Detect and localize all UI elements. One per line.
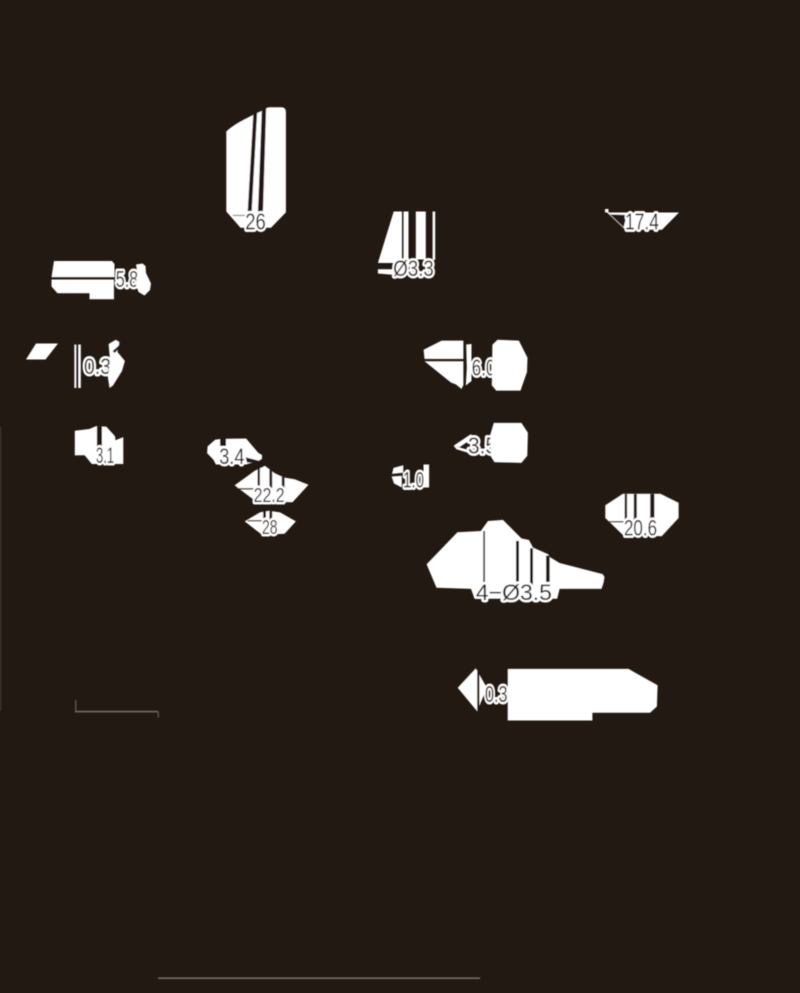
svg-text:28: 28 bbox=[262, 516, 278, 539]
svg-text:3.1: 3.1 bbox=[96, 443, 114, 468]
svg-text:6.0: 6.0 bbox=[472, 354, 496, 380]
svg-text:0.3: 0.3 bbox=[485, 681, 508, 707]
svg-text:22.2: 22.2 bbox=[254, 484, 285, 507]
svg-text:17.4: 17.4 bbox=[625, 209, 659, 235]
svg-text:1.0: 1.0 bbox=[403, 467, 424, 492]
svg-text:26: 26 bbox=[245, 209, 265, 235]
svg-text:3.4: 3.4 bbox=[219, 444, 244, 469]
svg-text:Ø3.3: Ø3.3 bbox=[393, 256, 434, 281]
svg-text:5.8: 5.8 bbox=[116, 266, 139, 292]
svg-text:20.6: 20.6 bbox=[624, 516, 657, 541]
svg-text:4−Ø3.5: 4−Ø3.5 bbox=[476, 580, 552, 605]
svg-text:0.3: 0.3 bbox=[84, 354, 111, 379]
